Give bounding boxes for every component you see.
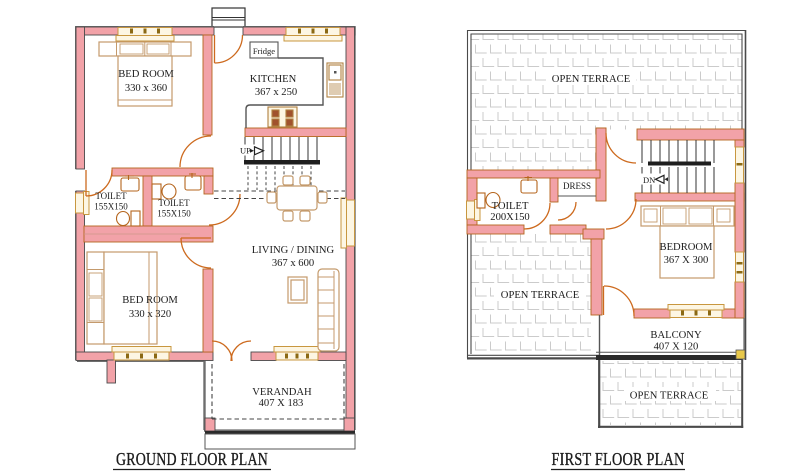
svg-text:BED ROOM: BED ROOM	[118, 69, 174, 80]
svg-text:200X150: 200X150	[490, 212, 529, 223]
svg-text:OPEN TERRACE: OPEN TERRACE	[630, 391, 708, 402]
svg-text:407 X 120: 407 X 120	[654, 342, 699, 353]
svg-text:330 x 320: 330 x 320	[129, 309, 171, 320]
svg-text:155X150: 155X150	[157, 209, 191, 219]
svg-text:KITCHEN: KITCHEN	[250, 74, 297, 85]
svg-text:330 x 360: 330 x 360	[125, 83, 167, 94]
svg-text:TOILET: TOILET	[492, 201, 529, 212]
svg-text:VERANDAH: VERANDAH	[252, 387, 312, 398]
svg-text:155X150: 155X150	[94, 202, 128, 212]
svg-text:OPEN TERRACE: OPEN TERRACE	[501, 290, 579, 301]
svg-text:TOILET: TOILET	[95, 191, 127, 201]
svg-text:BED ROOM: BED ROOM	[122, 295, 178, 306]
svg-text:FIRST FLOOR PLAN: FIRST FLOOR PLAN	[552, 449, 685, 469]
svg-text:LIVING / DINING: LIVING / DINING	[252, 245, 335, 256]
svg-text:TOILET: TOILET	[158, 198, 190, 208]
svg-text:UP: UP	[240, 146, 251, 156]
svg-text:DN: DN	[643, 175, 655, 185]
svg-text:407 X 183: 407 X 183	[259, 398, 304, 409]
svg-text:GROUND FLOOR PLAN: GROUND FLOOR PLAN	[116, 449, 268, 469]
svg-text:BEDROOM: BEDROOM	[660, 242, 714, 253]
svg-text:367 x 250: 367 x 250	[255, 87, 297, 98]
svg-text:DRESS: DRESS	[563, 181, 591, 191]
svg-text:OPEN TERRACE: OPEN TERRACE	[552, 74, 630, 85]
svg-text:367 x 600: 367 x 600	[272, 258, 314, 269]
svg-text:BALCONY: BALCONY	[650, 330, 702, 341]
svg-text:367 X 300: 367 X 300	[664, 255, 709, 266]
svg-text:Fridge: Fridge	[253, 46, 275, 56]
